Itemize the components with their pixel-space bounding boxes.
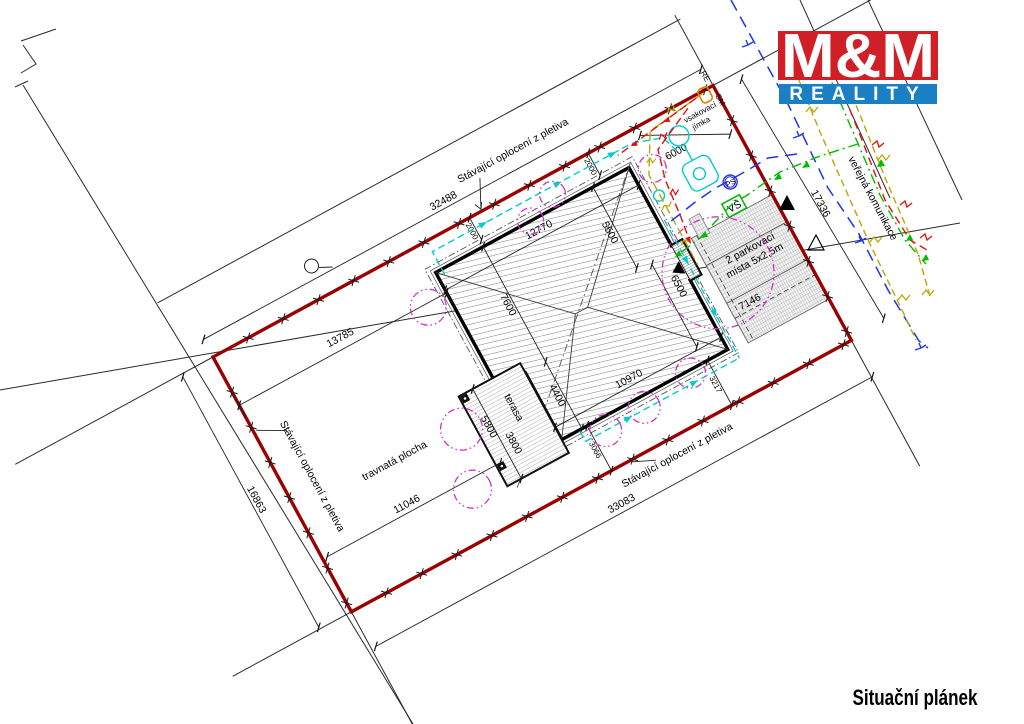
- svg-text:Situační plánek: Situační plánek: [853, 685, 978, 710]
- svg-text:REALITY: REALITY: [789, 84, 926, 105]
- svg-text:M&M: M&M: [781, 22, 935, 91]
